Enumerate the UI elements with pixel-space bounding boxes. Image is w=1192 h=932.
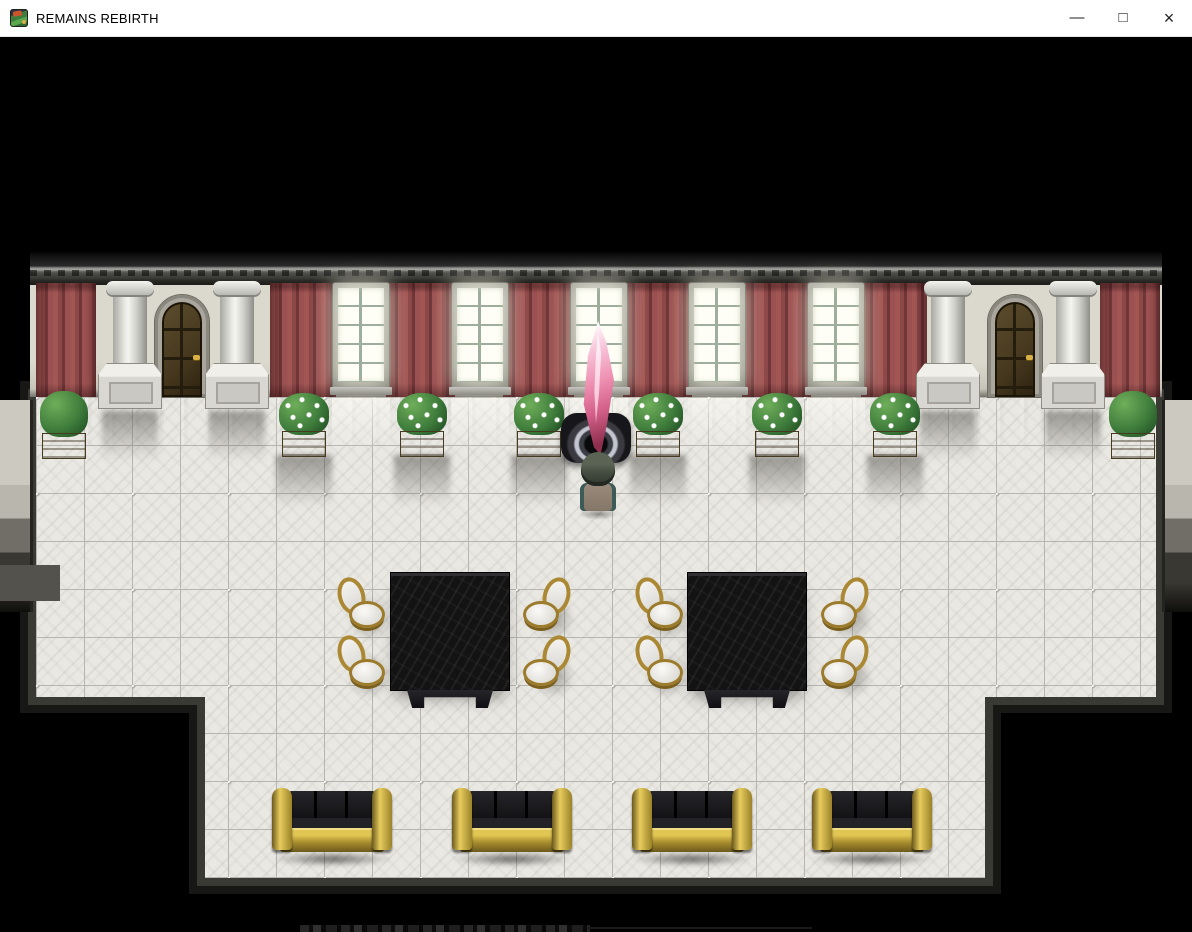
sofa-shadow <box>274 852 390 866</box>
bush-planter-pot <box>42 433 86 459</box>
sofa-arm-right <box>552 788 572 850</box>
chair <box>637 579 683 635</box>
sofa-arm-right <box>912 788 932 850</box>
left-wall-step <box>0 565 60 601</box>
chair <box>339 579 385 635</box>
flower-planter-bush <box>514 393 564 435</box>
chair <box>523 579 569 635</box>
window-controls: — □ × <box>1054 0 1192 36</box>
banquet-table <box>391 573 509 690</box>
door-panel <box>995 302 1035 397</box>
sofa-back-cushions <box>286 791 378 819</box>
app-icon <box>10 9 28 27</box>
pedestal-shadow <box>102 411 158 461</box>
bush-planter-bush <box>1109 391 1157 437</box>
chair-seat <box>349 659 385 686</box>
window-sill <box>805 387 867 395</box>
titlebar[interactable]: REMAINS REBIRTH — □ × <box>0 0 1192 37</box>
chair <box>821 637 867 693</box>
pedestal-shadow <box>1045 411 1101 461</box>
sofa-front-frame <box>820 828 924 852</box>
window-light-patch <box>688 398 746 450</box>
chair <box>523 637 569 693</box>
window-light-patch <box>451 398 509 450</box>
chair-seat <box>647 659 683 686</box>
wall-cornice <box>30 251 1162 285</box>
red-curtain <box>623 283 692 397</box>
flower-planter-bush <box>870 393 920 435</box>
sofa-front-frame <box>280 828 384 852</box>
red-curtain <box>36 283 96 397</box>
pedestal-panel <box>109 382 153 404</box>
chair <box>821 579 867 635</box>
planter-shadow <box>630 455 686 507</box>
flower-planter-pot <box>400 431 444 457</box>
sofa-arm-left <box>272 788 292 850</box>
column-capital <box>1049 281 1097 295</box>
sofa-front-frame <box>640 828 744 852</box>
planter-shadow <box>867 455 923 507</box>
column-pedestal <box>1041 363 1105 409</box>
window-glass <box>694 288 740 382</box>
door-handle <box>1026 355 1033 360</box>
sofa-back-cushions <box>466 791 558 819</box>
sofa-arm-left <box>452 788 472 850</box>
pedestal-panel <box>927 382 971 404</box>
sofa <box>272 788 392 862</box>
flower-planter-pot <box>517 431 561 457</box>
sofa <box>452 788 572 862</box>
flower-planter-bush <box>633 393 683 435</box>
cutoff-text-strip <box>300 925 590 932</box>
column-pedestal <box>916 363 980 409</box>
banquet-table <box>688 573 806 690</box>
pedestal-shadow <box>920 411 976 461</box>
sofa <box>812 788 932 862</box>
window-glass <box>457 288 503 382</box>
minimize-button[interactable]: — <box>1054 0 1100 36</box>
red-curtain <box>1100 283 1160 397</box>
bush-planter-pot <box>1111 433 1155 459</box>
player-hair <box>581 452 615 486</box>
player-body <box>580 483 616 511</box>
red-curtain <box>742 283 811 397</box>
column-capital <box>924 281 972 295</box>
cutoff-text-line <box>588 927 812 929</box>
red-curtain <box>503 283 574 397</box>
window-light-patch <box>807 398 865 450</box>
game-viewport[interactable] <box>0 37 1192 932</box>
sofa-shadow <box>634 852 750 866</box>
column-pedestal <box>98 363 162 409</box>
sofa-shadow <box>814 852 930 866</box>
sofa-arm-right <box>372 788 392 850</box>
chair-seat <box>349 601 385 628</box>
planter-shadow <box>749 455 805 507</box>
column-capital <box>213 281 261 295</box>
flower-planter-bush <box>397 393 447 435</box>
bush-planter-bush <box>40 391 88 437</box>
sofa <box>632 788 752 862</box>
red-curtain <box>270 283 336 397</box>
column-pedestal <box>205 363 269 409</box>
chair-seat <box>647 601 683 628</box>
door-handle <box>193 355 200 360</box>
pedestal-panel <box>216 382 260 404</box>
window-title: REMAINS REBIRTH <box>36 11 159 26</box>
sofa-arm-right <box>732 788 752 850</box>
window-sill <box>330 387 392 395</box>
chair <box>637 637 683 693</box>
planter-shadow <box>394 455 450 507</box>
sofa-back-cushions <box>646 791 738 819</box>
flower-planter-pot <box>636 431 680 457</box>
window-glass <box>813 288 859 382</box>
planter-shadow <box>511 455 567 507</box>
flower-planter-pot <box>282 431 326 457</box>
window-sill <box>449 387 511 395</box>
door-panel <box>162 302 202 397</box>
sofa-arm-left <box>632 788 652 850</box>
flower-planter-bush <box>279 393 329 435</box>
red-curtain <box>386 283 455 397</box>
flower-planter-bush <box>752 393 802 435</box>
window-glass <box>338 288 384 382</box>
window-light-patch <box>332 398 390 450</box>
sofa-arm-left <box>812 788 832 850</box>
chair-seat <box>821 659 857 686</box>
close-button[interactable]: × <box>1146 0 1192 36</box>
sofa-front-frame <box>460 828 564 852</box>
planter-shadow <box>276 455 332 507</box>
chair <box>339 637 385 693</box>
chair-seat <box>821 601 857 628</box>
app-window: REMAINS REBIRTH — □ × <box>0 0 1192 932</box>
maximize-button[interactable]: □ <box>1100 0 1146 36</box>
column-capital <box>106 281 154 295</box>
sofa-back-cushions <box>826 791 918 819</box>
right-wall-fragment <box>1162 400 1192 612</box>
flower-planter-pot <box>755 431 799 457</box>
window-sill <box>686 387 748 395</box>
sofa-shadow <box>454 852 570 866</box>
pedestal-shadow <box>209 411 265 461</box>
chair-seat <box>523 601 559 628</box>
pedestal-panel <box>1052 382 1096 404</box>
chair-seat <box>523 659 559 686</box>
flower-planter-pot <box>873 431 917 457</box>
cornice-dentils <box>30 270 1162 276</box>
